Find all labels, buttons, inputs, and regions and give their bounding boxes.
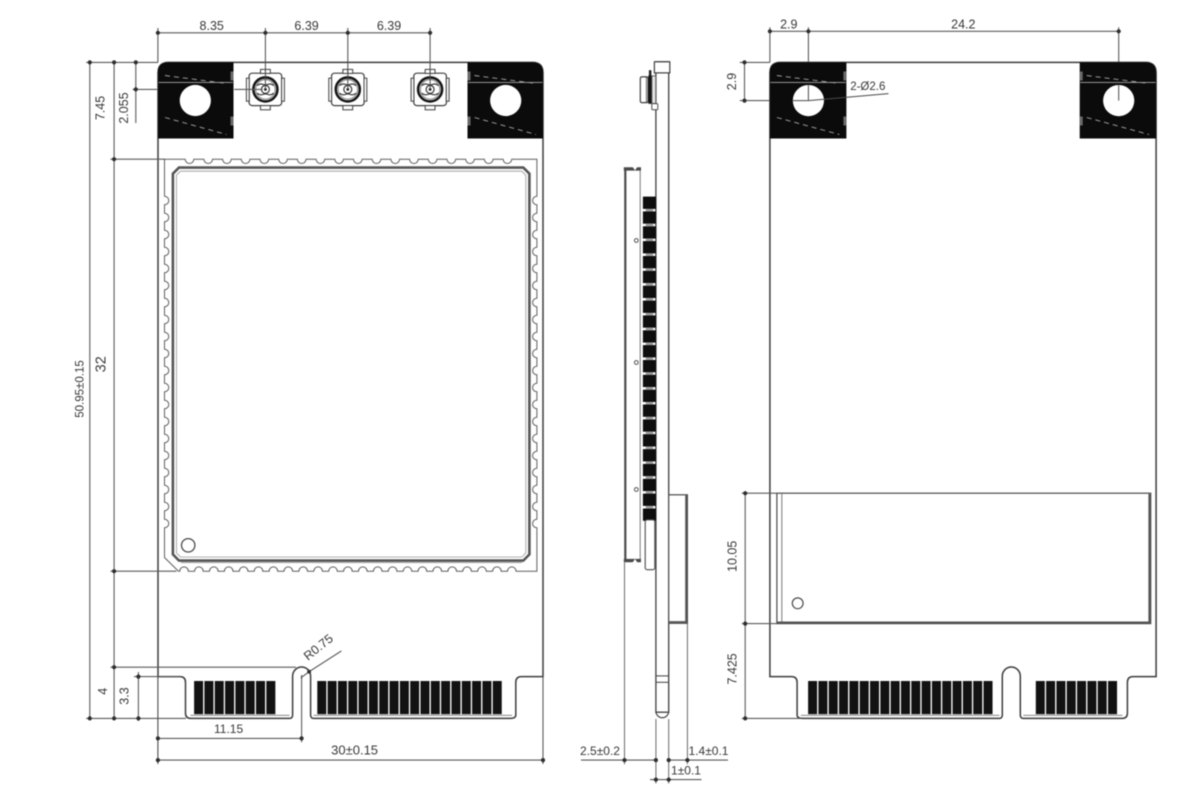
svg-text:50.95±0.15: 50.95±0.15 — [75, 360, 87, 417]
svg-text:6.39: 6.39 — [377, 19, 401, 33]
svg-text:7.425: 7.425 — [725, 653, 739, 684]
svg-text:1.4±0.1: 1.4±0.1 — [689, 744, 729, 758]
svg-text:32: 32 — [93, 356, 109, 372]
svg-text:11.15: 11.15 — [214, 722, 243, 736]
svg-text:2.9: 2.9 — [780, 18, 797, 32]
svg-text:30±0.15: 30±0.15 — [331, 743, 378, 758]
svg-text:4: 4 — [96, 688, 110, 695]
svg-text:24.2: 24.2 — [951, 18, 975, 32]
svg-text:8.35: 8.35 — [200, 19, 224, 33]
svg-text:6.39: 6.39 — [294, 19, 318, 33]
svg-text:10.05: 10.05 — [725, 541, 739, 572]
svg-text:2.9: 2.9 — [725, 73, 739, 90]
svg-text:3.3: 3.3 — [117, 687, 131, 704]
svg-text:2-Ø2.6: 2-Ø2.6 — [850, 81, 885, 93]
svg-text:1±0.1: 1±0.1 — [671, 764, 701, 778]
svg-text:2.5±0.2: 2.5±0.2 — [580, 744, 620, 758]
svg-text:2.055: 2.055 — [117, 92, 131, 123]
svg-text:7.45: 7.45 — [93, 96, 107, 120]
